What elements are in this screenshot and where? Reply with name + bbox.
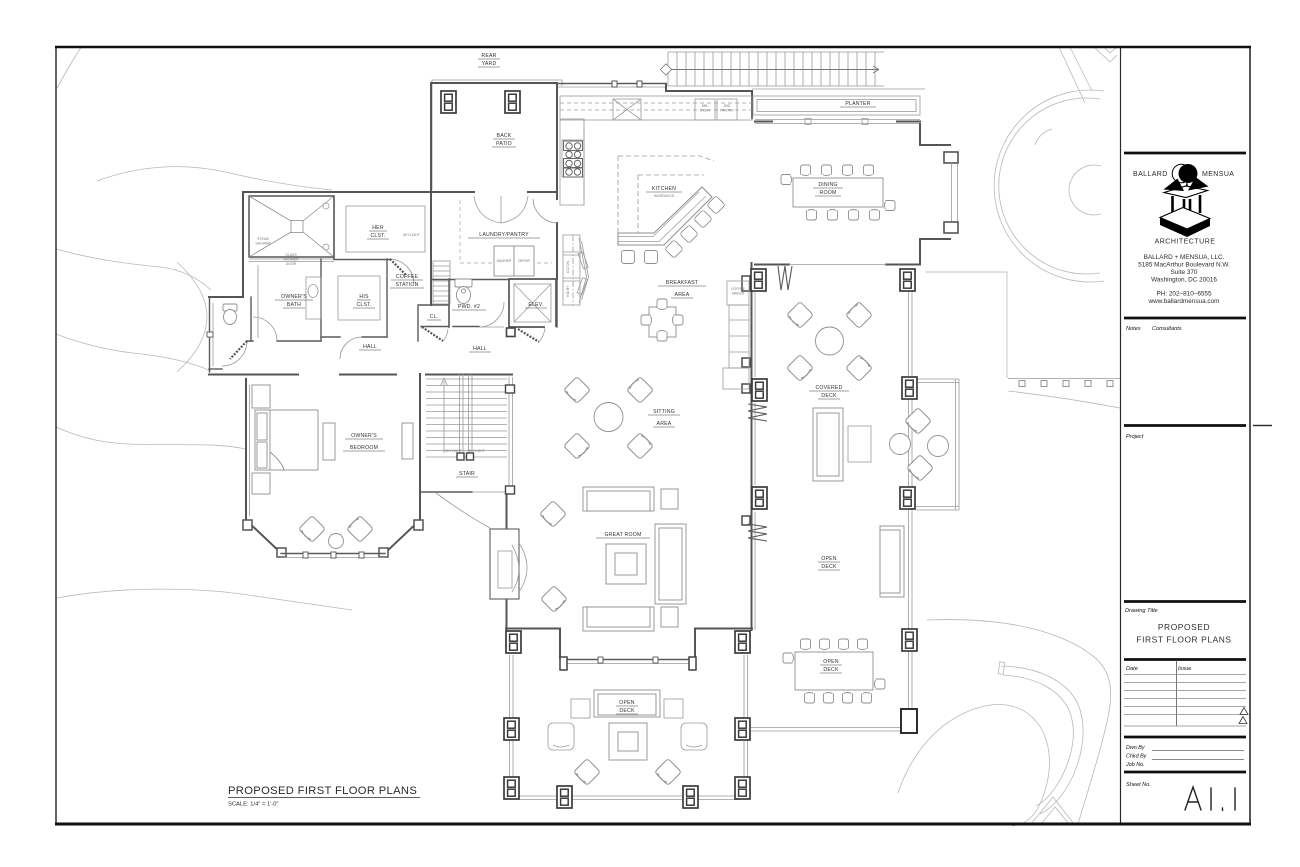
svg-text:HER: HER	[372, 225, 384, 231]
svg-text:COFFEE: COFFEE	[396, 274, 419, 280]
svg-text:OPEN: OPEN	[619, 700, 635, 706]
svg-text:BALLARD + MENSUA, LLC.: BALLARD + MENSUA, LLC.	[1144, 254, 1225, 261]
svg-text:Date: Date	[1126, 666, 1138, 672]
svg-text:PATIO: PATIO	[496, 141, 512, 147]
svg-text:OPEN: OPEN	[821, 556, 837, 562]
svg-text:PLANTER: PLANTER	[845, 101, 870, 107]
svg-text:HALL: HALL	[473, 346, 487, 352]
svg-text:PROPOSED: PROPOSED	[1158, 622, 1210, 632]
svg-text:Washington, DC 20016: Washington, DC 20016	[1151, 277, 1217, 284]
svg-text:CLST.: CLST.	[356, 302, 371, 308]
svg-text:MAKER: MAKER	[732, 292, 745, 296]
svg-text:OWNER'S: OWNER'S	[281, 294, 307, 300]
svg-text:KITCHEN: KITCHEN	[652, 186, 676, 192]
svg-text:SITTING: SITTING	[653, 409, 675, 415]
svg-text:CL.: CL.	[430, 314, 439, 320]
svg-text:YARD: YARD	[482, 61, 497, 67]
svg-text:ELEV.: ELEV.	[528, 302, 543, 308]
svg-text:Drawing Title: Drawing Title	[1125, 608, 1158, 614]
svg-text:OPEN: OPEN	[823, 659, 839, 665]
svg-text:DECK: DECK	[821, 393, 837, 399]
svg-text:DRYER: DRYER	[518, 259, 530, 263]
svg-text:HARDWOOD: HARDWOOD	[654, 194, 675, 198]
svg-text:SKYLIGHT: SKYLIGHT	[403, 233, 420, 237]
svg-text:SHOWER: SHOWER	[255, 242, 271, 246]
svg-text:5185 MacArthur Boulevard N.W.: 5185 MacArthur Boulevard N.W.	[1138, 262, 1230, 269]
svg-text:STATION: STATION	[395, 282, 418, 288]
svg-text:SKYLIGHT: SKYLIGHT	[445, 449, 462, 453]
svg-text:SCALE: 1/4" = 1'-0": SCALE: 1/4" = 1'-0"	[228, 802, 279, 808]
svg-text:COVERED: COVERED	[815, 385, 842, 391]
svg-text:Chkd By: Chkd By	[1126, 754, 1147, 760]
svg-text:DECK: DECK	[619, 708, 635, 714]
svg-text:WASHER: WASHER	[497, 259, 512, 263]
svg-text:COFFEE: COFFEE	[731, 287, 745, 291]
svg-text:AREA: AREA	[675, 292, 690, 298]
svg-text:PWD. #2: PWD. #2	[458, 304, 480, 310]
svg-text:Suite 370: Suite 370	[1170, 269, 1197, 276]
svg-text:DECK: DECK	[823, 667, 839, 673]
svg-text:Notes: Notes	[1126, 326, 1141, 332]
svg-text:HIS: HIS	[359, 294, 369, 300]
svg-text:MENSUA: MENSUA	[1202, 171, 1234, 178]
svg-text:Consultants: Consultants	[1152, 326, 1182, 332]
svg-text:www.ballardmensua.com: www.ballardmensua.com	[1147, 298, 1219, 305]
svg-text:BALLARD: BALLARD	[1133, 171, 1168, 178]
svg-text:GREAT ROOM: GREAT ROOM	[605, 532, 642, 538]
svg-text:ARCHITECTURE: ARCHITECTURE	[1155, 239, 1216, 246]
svg-text:Job No.: Job No.	[1125, 762, 1145, 768]
svg-text:Project: Project	[1126, 434, 1144, 440]
svg-text:SKYLIGHT: SKYLIGHT	[468, 449, 485, 453]
svg-text:LAUNDRY/PANTRY: LAUNDRY/PANTRY	[479, 232, 529, 238]
svg-text:Dwn By: Dwn By	[1126, 745, 1145, 751]
svg-text:SHOWER: SHOWER	[283, 258, 299, 262]
svg-text:BREAKFAST: BREAKFAST	[666, 280, 699, 286]
svg-text:AREA: AREA	[657, 421, 672, 427]
svg-text:REAR: REAR	[481, 53, 496, 59]
svg-text:STAIR: STAIR	[459, 471, 475, 477]
svg-text:DBL: DBL	[702, 104, 709, 108]
svg-text:ROOM: ROOM	[820, 190, 837, 196]
svg-text:FIRST FLOOR PLANS: FIRST FLOOR PLANS	[1136, 635, 1231, 645]
svg-text:PROPOSED FIRST FLOOR PLANS: PROPOSED FIRST FLOOR PLANS	[228, 785, 417, 797]
svg-text:PANTRY: PANTRY	[720, 109, 734, 113]
svg-text:GLASS: GLASS	[285, 253, 297, 257]
svg-text:STEAM: STEAM	[257, 237, 269, 241]
svg-text:OWNER'S: OWNER'S	[351, 433, 377, 439]
svg-text:Issue: Issue	[1178, 666, 1191, 672]
svg-text:BEDROOM: BEDROOM	[350, 445, 378, 451]
svg-text:DINING: DINING	[818, 182, 837, 188]
svg-text:KID BY: KID BY	[566, 285, 570, 297]
svg-text:CLST.: CLST.	[370, 233, 385, 239]
svg-text:HALL: HALL	[363, 344, 377, 350]
svg-text:BATH: BATH	[287, 302, 301, 308]
svg-text:DECK: DECK	[821, 564, 837, 570]
svg-text:Sheet No.: Sheet No.	[1126, 782, 1151, 788]
svg-text:BACK: BACK	[497, 133, 512, 139]
svg-text:OVEN: OVEN	[700, 109, 710, 113]
svg-text:C02 DN: C02 DN	[566, 260, 570, 273]
svg-text:PH: 202–810–6555: PH: 202–810–6555	[1156, 291, 1212, 298]
svg-text:DOOR: DOOR	[286, 262, 297, 266]
svg-text:2ND: 2ND	[724, 104, 731, 108]
